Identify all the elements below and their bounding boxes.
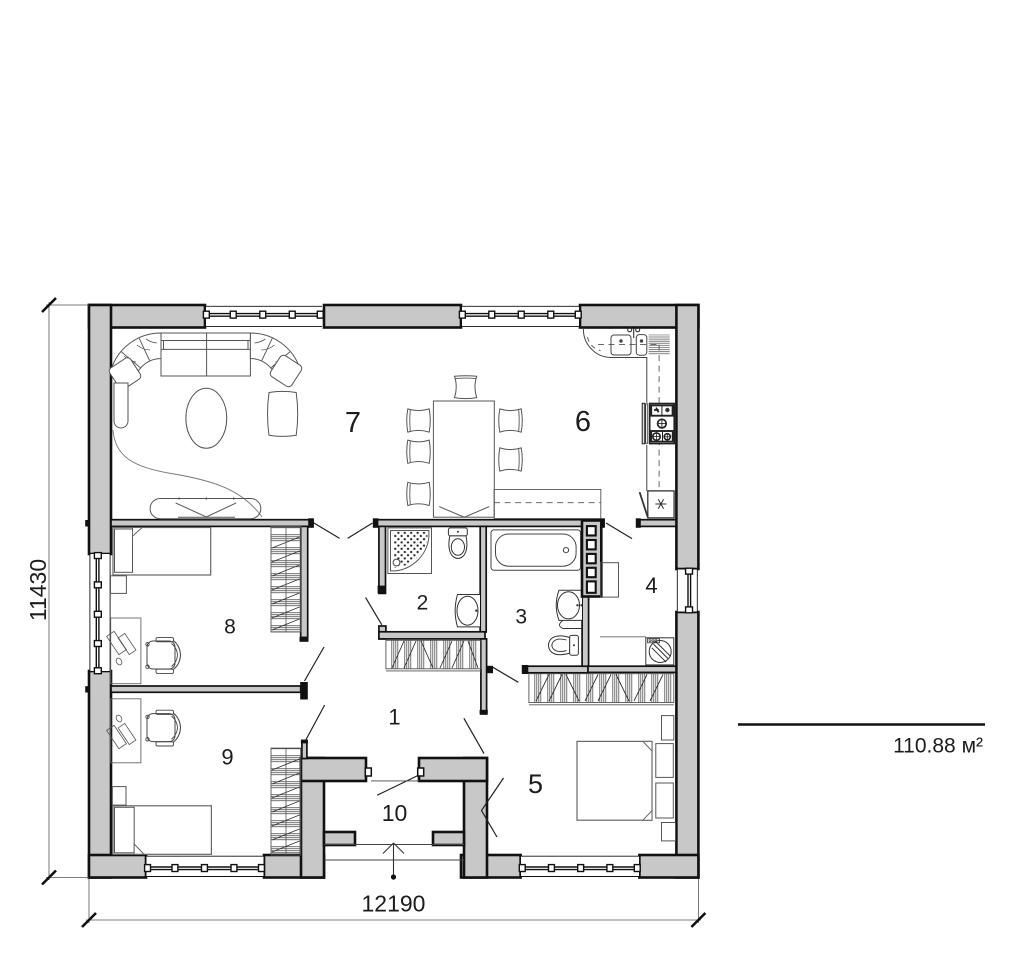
svg-text:2: 2 <box>417 592 429 615</box>
svg-text:4: 4 <box>645 573 657 598</box>
svg-text:11430: 11430 <box>25 559 51 621</box>
svg-text:7: 7 <box>345 407 361 439</box>
svg-text:10: 10 <box>382 800 408 826</box>
svg-text:12190: 12190 <box>362 891 426 917</box>
svg-text:3: 3 <box>515 606 527 629</box>
svg-text:9: 9 <box>221 745 233 770</box>
svg-text:8: 8 <box>224 615 236 638</box>
svg-text:6: 6 <box>575 406 591 438</box>
svg-text:1: 1 <box>388 705 400 730</box>
svg-text:5: 5 <box>528 769 543 799</box>
svg-text:110.88 м²: 110.88 м² <box>893 735 983 758</box>
